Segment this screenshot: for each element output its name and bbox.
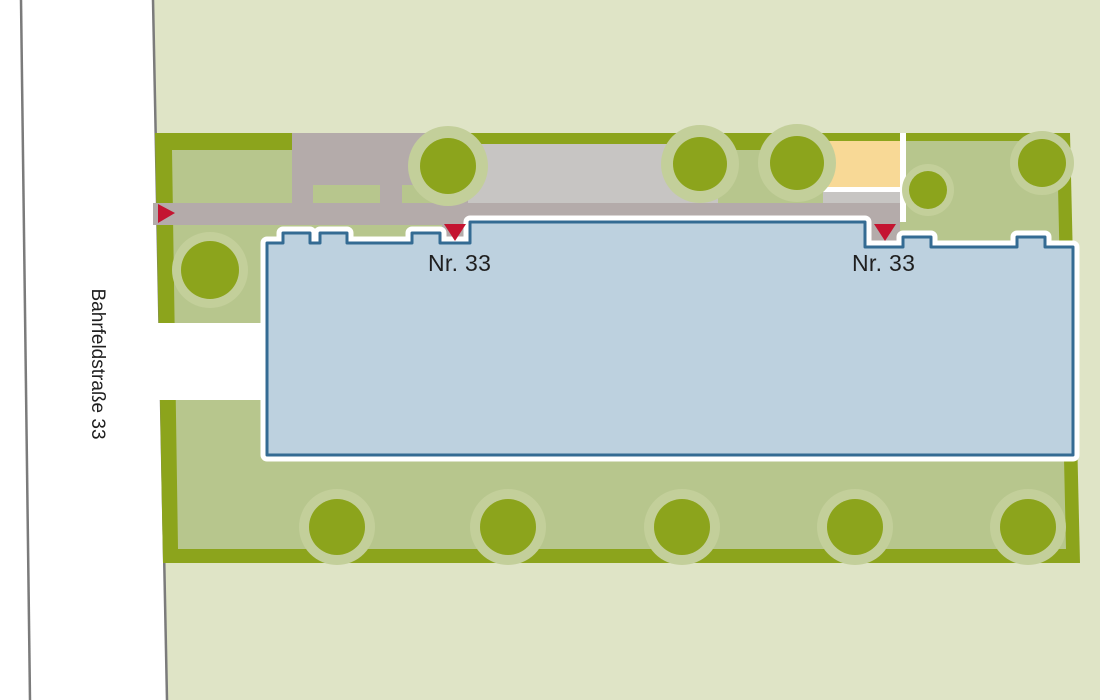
street-name-label: Bahrfeldstraße 33 [85,279,109,449]
tree [770,136,824,190]
garage-structure [292,133,427,185]
tree [309,499,365,555]
tree [654,499,710,555]
paved-strip [823,191,900,203]
tree [181,241,239,299]
building-number-label: Nr. 33 [852,250,915,277]
playground-edge [900,133,906,222]
tree [1000,499,1056,555]
building-number-label: Nr. 33 [428,250,491,277]
tree [420,138,476,194]
tree [673,137,727,191]
playground-edge [818,187,906,192]
walkway-connector [380,185,402,205]
tree [480,499,536,555]
site-plan-canvas [0,0,1100,700]
tree [909,171,947,209]
tree [1018,139,1066,187]
street-access-gap [148,323,266,400]
walkway-connector [292,185,313,205]
site-plan: Bahrfeldstraße 33 Nr. 33 Nr. 33 [0,0,1100,700]
tree [827,499,883,555]
building-footprint [267,222,1073,455]
